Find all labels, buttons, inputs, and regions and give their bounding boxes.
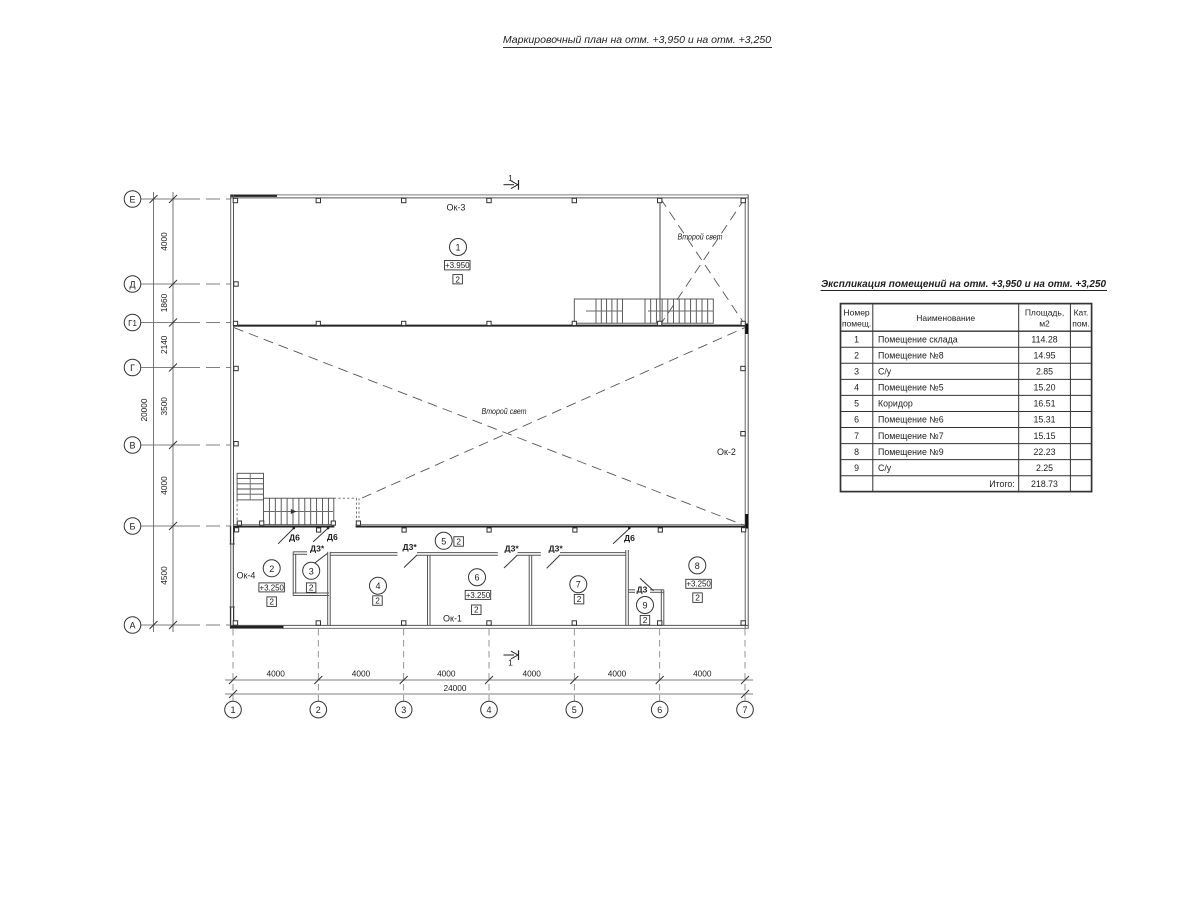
svg-text:15.20: 15.20 (1033, 383, 1055, 393)
svg-text:5: 5 (441, 536, 446, 546)
svg-text:2: 2 (309, 583, 314, 593)
svg-text:2: 2 (316, 705, 321, 715)
svg-text:4000: 4000 (693, 669, 712, 679)
svg-text:4000: 4000 (437, 669, 456, 679)
svg-text:7: 7 (576, 580, 581, 590)
svg-text:9: 9 (642, 601, 647, 611)
svg-text:м2: м2 (1039, 319, 1050, 329)
svg-text:4000: 4000 (352, 669, 371, 679)
svg-text:6: 6 (657, 705, 662, 715)
svg-text:4000: 4000 (159, 232, 169, 251)
svg-text:+3.950: +3.950 (445, 261, 470, 270)
svg-text:Б: Б (130, 522, 136, 532)
svg-text:4: 4 (486, 705, 491, 715)
svg-text:Е: Е (129, 195, 135, 205)
svg-text:22.23: 22.23 (1033, 447, 1055, 457)
svg-text:Помещение №9: Помещение №9 (878, 447, 944, 457)
svg-text:6: 6 (474, 573, 479, 583)
svg-text:1: 1 (508, 173, 513, 183)
svg-text:7: 7 (742, 705, 747, 715)
svg-text:Кат.: Кат. (1074, 308, 1089, 318)
svg-text:Помещение склада: Помещение склада (878, 335, 958, 345)
svg-text:помещ.: помещ. (842, 319, 871, 329)
svg-text:Д3*: Д3* (549, 544, 564, 554)
svg-text:2: 2 (375, 596, 380, 606)
svg-text:Ок-3: Ок-3 (447, 203, 466, 213)
svg-text:С/у: С/у (878, 463, 892, 473)
svg-text:2140: 2140 (159, 335, 169, 354)
svg-text:Ок-4: Ок-4 (237, 571, 256, 581)
svg-text:4: 4 (854, 383, 859, 393)
svg-text:2: 2 (577, 594, 582, 604)
svg-text:1: 1 (508, 658, 513, 668)
svg-text:Маркировочный план на отм. +3,: Маркировочный план на отм. +3,950 и на о… (503, 34, 771, 46)
svg-text:3: 3 (401, 705, 406, 715)
svg-text:Помещение №6: Помещение №6 (878, 415, 944, 425)
svg-text:2.25: 2.25 (1036, 463, 1053, 473)
svg-text:Д: Д (129, 280, 135, 290)
svg-text:Г: Г (130, 363, 135, 373)
svg-text:24000: 24000 (443, 683, 466, 693)
svg-text:218.73: 218.73 (1031, 479, 1058, 489)
svg-text:8: 8 (695, 561, 700, 571)
svg-text:С/у: С/у (878, 367, 892, 377)
svg-text:В: В (129, 441, 135, 451)
svg-text:8: 8 (854, 447, 859, 457)
svg-text:Второй свет: Второй свет (482, 406, 527, 416)
svg-text:2: 2 (474, 605, 479, 615)
svg-text:Д3*: Д3* (310, 543, 325, 553)
svg-text:6: 6 (854, 415, 859, 425)
svg-text:+3.250: +3.250 (260, 583, 285, 592)
svg-text:Ок-1: Ок-1 (443, 614, 462, 624)
svg-text:Д6: Д6 (289, 533, 300, 543)
svg-text:5: 5 (572, 705, 577, 715)
svg-text:Д3: Д3 (637, 585, 648, 595)
svg-text:2: 2 (456, 536, 461, 546)
svg-text:4500: 4500 (159, 566, 169, 585)
svg-text:9: 9 (854, 463, 859, 473)
svg-text:2: 2 (643, 615, 648, 625)
svg-text:2: 2 (695, 593, 700, 603)
svg-text:3: 3 (309, 566, 314, 576)
svg-text:4: 4 (375, 581, 380, 591)
svg-text:20000: 20000 (139, 398, 149, 421)
svg-text:2.85: 2.85 (1036, 367, 1053, 377)
svg-text:15.15: 15.15 (1033, 431, 1055, 441)
svg-text:Коридор: Коридор (878, 399, 913, 409)
svg-text:114.28: 114.28 (1031, 335, 1057, 345)
svg-text:1: 1 (455, 243, 460, 253)
svg-text:2: 2 (854, 351, 859, 361)
svg-text:Д6: Д6 (327, 532, 338, 542)
svg-text:1: 1 (230, 705, 235, 715)
svg-text:16.51: 16.51 (1033, 399, 1055, 409)
svg-text:Помещение №7: Помещение №7 (878, 431, 944, 441)
svg-text:2: 2 (269, 564, 274, 574)
svg-text:4000: 4000 (159, 476, 169, 495)
svg-text:4000: 4000 (608, 669, 627, 679)
svg-text:Наименование: Наименование (916, 313, 975, 323)
svg-text:4000: 4000 (266, 669, 285, 679)
svg-text:Помещение №8: Помещение №8 (878, 351, 944, 361)
svg-text:1860: 1860 (159, 293, 169, 312)
svg-text:Номер: Номер (844, 308, 870, 318)
svg-text:2: 2 (269, 597, 274, 607)
svg-text:Д3*: Д3* (505, 544, 520, 554)
svg-text:1: 1 (854, 335, 859, 345)
svg-text:Второй свет: Второй свет (678, 232, 723, 242)
svg-text:Ок-2: Ок-2 (717, 447, 736, 457)
svg-text:4000: 4000 (522, 669, 541, 679)
svg-text:Итого:: Итого: (989, 479, 1015, 489)
svg-text:А: А (129, 621, 135, 631)
svg-text:3: 3 (854, 367, 859, 377)
svg-text:Д6: Д6 (624, 533, 635, 543)
svg-text:Д3*: Д3* (403, 542, 418, 552)
svg-text:Помещение №5: Помещение №5 (878, 383, 944, 393)
svg-text:пом.: пом. (1072, 319, 1090, 329)
svg-text:2: 2 (455, 274, 460, 284)
svg-text:5: 5 (854, 399, 859, 409)
svg-text:15.31: 15.31 (1033, 415, 1055, 425)
svg-text:+3.250: +3.250 (686, 580, 711, 589)
svg-text:+3.250: +3.250 (466, 591, 491, 600)
svg-text:7: 7 (854, 431, 859, 441)
svg-text:14.95: 14.95 (1033, 351, 1055, 361)
svg-text:3500: 3500 (159, 397, 169, 416)
svg-text:Г1: Г1 (128, 319, 137, 328)
svg-text:Площадь,: Площадь, (1025, 308, 1064, 318)
svg-text:Экспликация помещений на отм.: Экспликация помещений на отм. +3,950 и н… (821, 278, 1106, 290)
